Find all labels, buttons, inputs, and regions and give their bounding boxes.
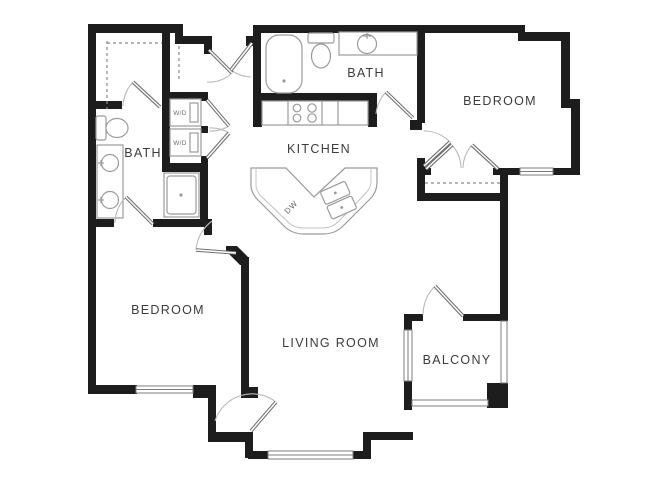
room-label-living-room: LIVING ROOM (282, 336, 380, 350)
washer-dryer-label-2: W/D (173, 140, 187, 147)
shower-icon (164, 173, 199, 217)
balcony-railing-bottom (412, 400, 488, 406)
toilet-icon-top-bath (308, 33, 334, 68)
walls-layer (88, 24, 580, 459)
balcony-post (487, 383, 508, 408)
floor-plan-page: BATH BATH KITCHEN BEDROOM BEDROOM LIVING… (0, 0, 670, 480)
stove-icon (288, 101, 322, 125)
room-label-bedroom-left: BEDROOM (131, 303, 205, 317)
room-label-balcony: BALCONY (423, 353, 492, 367)
window-living-room (268, 451, 353, 459)
window-balcony (404, 330, 412, 381)
washer-dryer-label-1: W/D (173, 110, 187, 117)
bathtub-icon (266, 35, 302, 93)
sink-counter-top-bath (339, 32, 417, 55)
room-label-bedroom-right: BEDROOM (463, 94, 537, 108)
floor-plan: BATH BATH KITCHEN BEDROOM BEDROOM LIVING… (0, 0, 670, 480)
window-bedroom-left (136, 386, 193, 393)
balcony-railing-right (501, 321, 507, 383)
room-label-bath-top: BATH (347, 66, 385, 80)
window-bedroom-right (520, 168, 553, 175)
toilet-icon-left-bath (96, 116, 128, 140)
room-label-bath-left: BATH (124, 146, 162, 160)
kitchen-island (251, 168, 377, 234)
room-label-kitchen: KITCHEN (287, 142, 351, 156)
